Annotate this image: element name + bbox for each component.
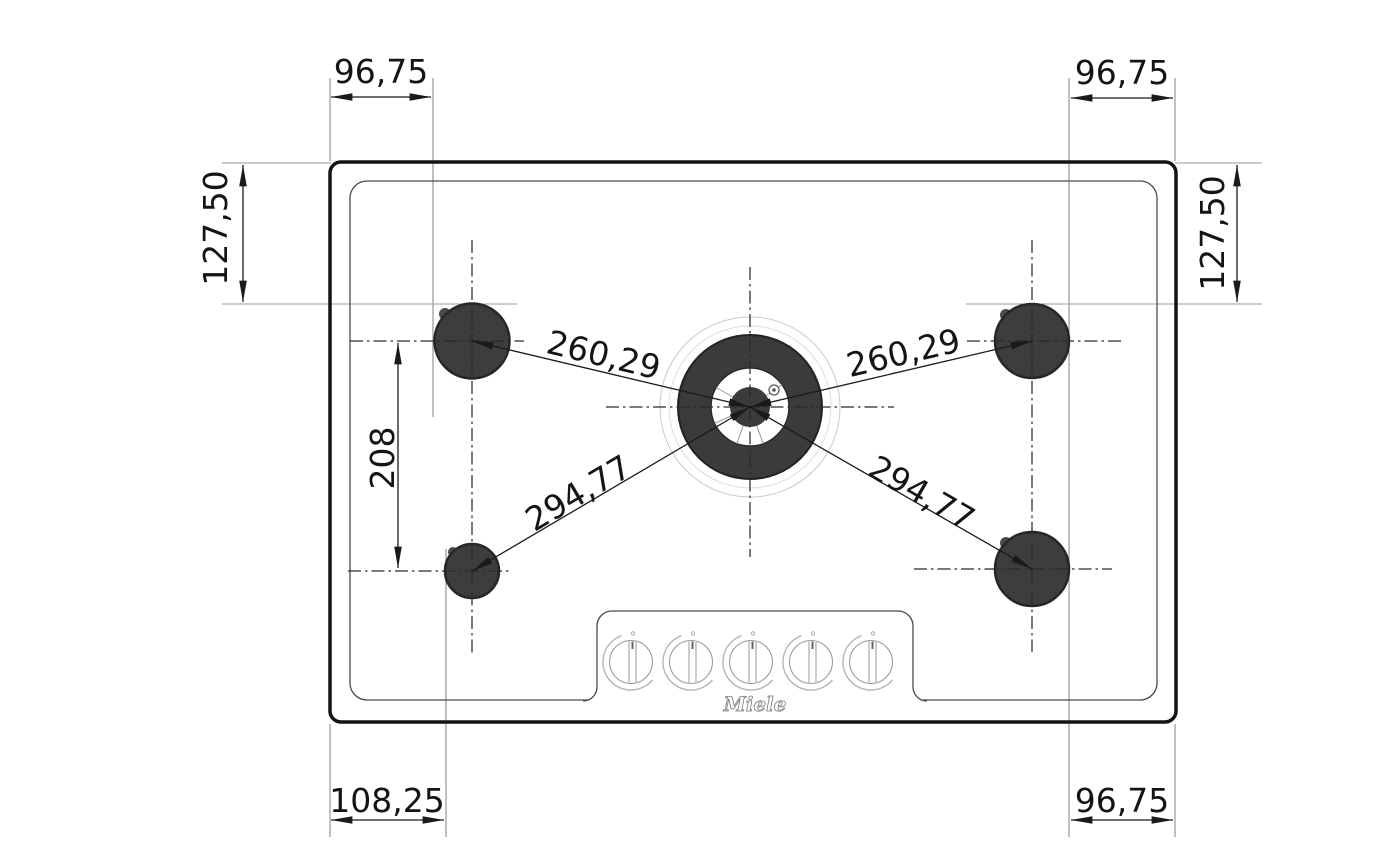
dim-top-right-width: 96,75 xyxy=(1075,53,1169,92)
dim-left-height: 127,50 xyxy=(196,170,235,285)
drawing-canvas: Miele xyxy=(0,0,1400,863)
dim-right-height: 127,50 xyxy=(1193,175,1232,290)
dim-left-burner-spacing: 208 xyxy=(363,427,402,490)
dim-bottom-left-width: 108,25 xyxy=(329,781,444,820)
dim-wok-to-rear-right: 260,29 xyxy=(843,321,964,385)
dim-top-left-width: 96,75 xyxy=(334,52,428,91)
dim-wok-to-rear-left: 260,29 xyxy=(543,322,664,387)
dim-wok-to-front-right: 294,77 xyxy=(862,447,982,538)
cooktop-dimension-drawing: Miele xyxy=(0,0,1400,863)
brand-logo: Miele xyxy=(723,692,787,716)
dim-bottom-right-width: 96,75 xyxy=(1075,781,1169,820)
dim-wok-to-front-left: 294,77 xyxy=(519,447,638,539)
burners xyxy=(435,304,1070,607)
